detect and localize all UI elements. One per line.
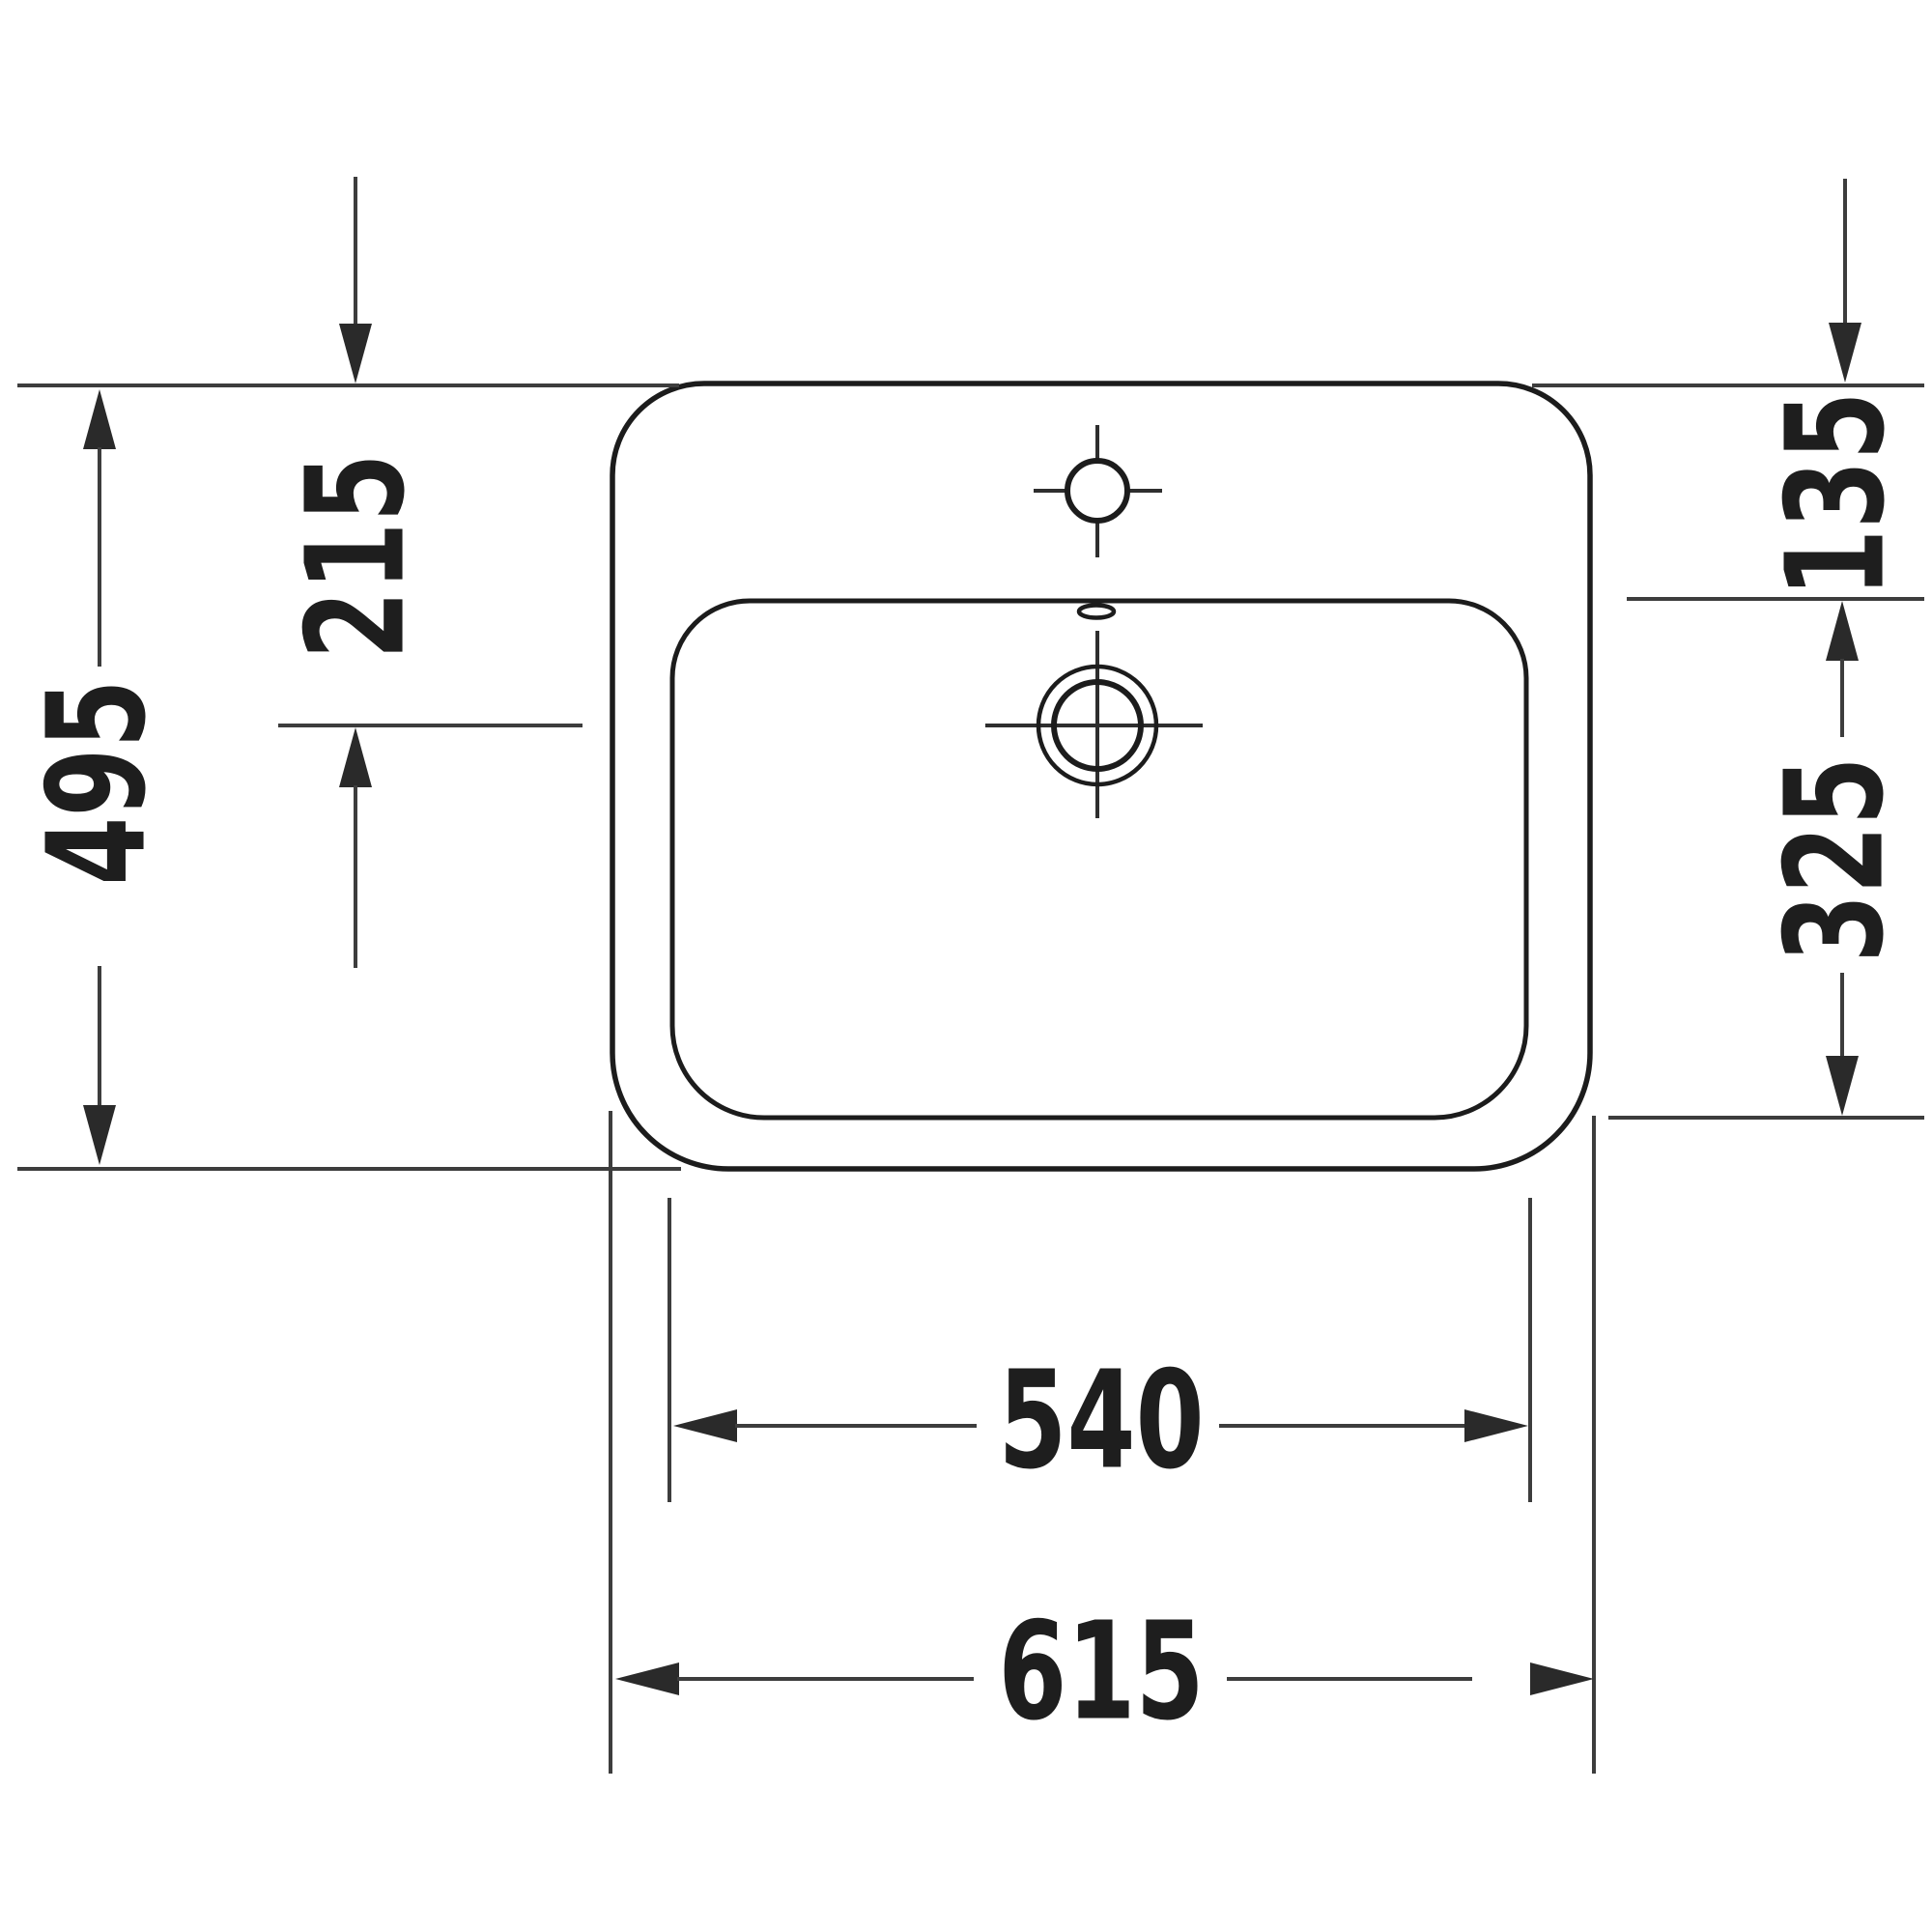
arrowhead-615-right — [1530, 1662, 1594, 1695]
dim-label-135: 135 — [1756, 391, 1914, 597]
arrowhead-540-right — [1464, 1409, 1528, 1442]
faucet-hole-circle — [1067, 461, 1127, 521]
dim-label-540: 540 — [998, 1341, 1204, 1498]
arrowhead-495-down — [83, 1105, 116, 1165]
arrowhead-615-left — [615, 1662, 679, 1695]
overflow-slot — [1079, 606, 1114, 618]
arrowhead-495-up — [83, 389, 116, 449]
dim-label-325: 325 — [1755, 756, 1913, 962]
dim-label-615: 615 — [998, 1592, 1204, 1749]
dim-label-215: 215 — [276, 453, 434, 659]
arrowhead-215-up — [339, 727, 372, 787]
arrowhead-540-left — [673, 1409, 737, 1442]
arrowhead-215-down — [339, 324, 372, 384]
arrowhead-135-down — [1829, 323, 1861, 383]
dim-label-495: 495 — [17, 679, 175, 885]
dimension-drawing-canvas: 495 215 135 325 540 615 — [0, 0, 1932, 1932]
arrowhead-135-up — [1826, 601, 1859, 661]
washbasin-technical-drawing: 495 215 135 325 540 615 — [0, 0, 1932, 1932]
arrowhead-325-down — [1826, 1056, 1859, 1116]
